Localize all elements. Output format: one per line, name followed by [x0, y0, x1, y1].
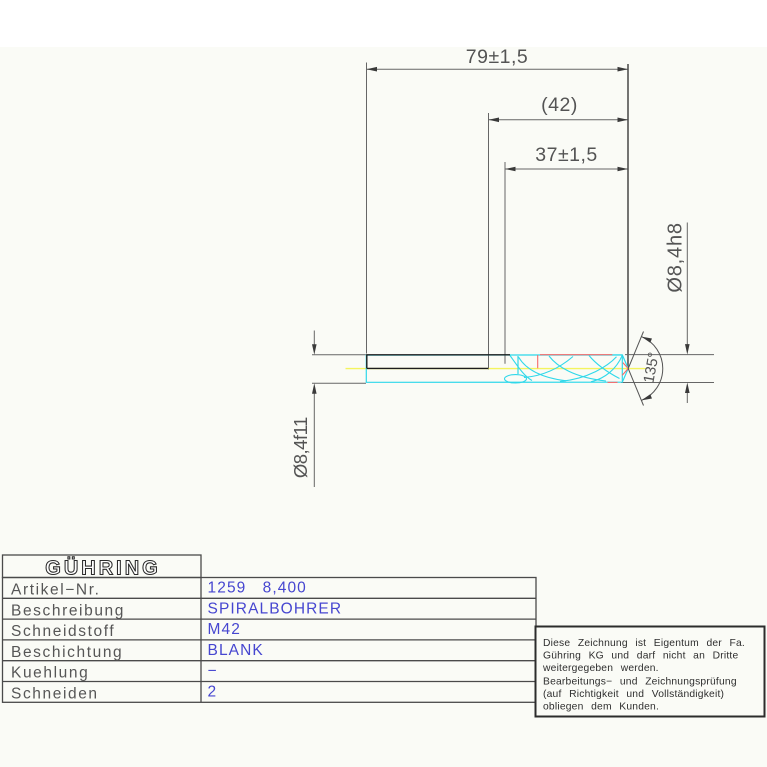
- svg-text:Gühring KG und darf nicht an D: Gühring KG und darf nicht an Dritte: [543, 651, 738, 662]
- svg-text:Beschreibung: Beschreibung: [11, 602, 125, 619]
- svg-text:79±1,5: 79±1,5: [466, 46, 529, 68]
- svg-text:Ø8,4f11: Ø8,4f11: [290, 417, 311, 478]
- svg-text:SPIRALBOHRER: SPIRALBOHRER: [208, 600, 343, 617]
- svg-text:Kuehlung: Kuehlung: [11, 665, 89, 682]
- svg-text:Ø8,4h8: Ø8,4h8: [665, 222, 687, 292]
- svg-text:(42): (42): [541, 94, 578, 116]
- svg-text:Schneidstoff: Schneidstoff: [11, 623, 115, 640]
- svg-text:(auf Richtigkeit und Vollständ: (auf Richtigkeit und Vollständigkeit): [543, 689, 724, 700]
- svg-text:BLANK: BLANK: [208, 642, 264, 659]
- svg-text:Bearbeitungs− und Zeichnungspr: Bearbeitungs− und Zeichnungsprüfung: [543, 677, 737, 688]
- svg-text:2: 2: [208, 684, 218, 701]
- svg-text:Schneiden: Schneiden: [11, 686, 99, 703]
- svg-text:obliegen dem Kunden.: obliegen dem Kunden.: [543, 702, 659, 713]
- svg-text:M42: M42: [208, 621, 241, 638]
- svg-text:Artikel−Nr.: Artikel−Nr.: [11, 582, 101, 599]
- svg-text:−: −: [208, 663, 218, 680]
- svg-text:weitergegeben werden.: weitergegeben werden.: [542, 663, 659, 674]
- svg-text:Diese Zeichnung ist Eigentum d: Diese Zeichnung ist Eigentum der Fa.: [543, 638, 745, 649]
- svg-text:GÜHRING: GÜHRING: [45, 557, 160, 580]
- svg-text:37±1,5: 37±1,5: [535, 144, 598, 166]
- svg-text:1259 8,400: 1259 8,400: [208, 580, 307, 597]
- svg-text:Beschichtung: Beschichtung: [11, 644, 123, 661]
